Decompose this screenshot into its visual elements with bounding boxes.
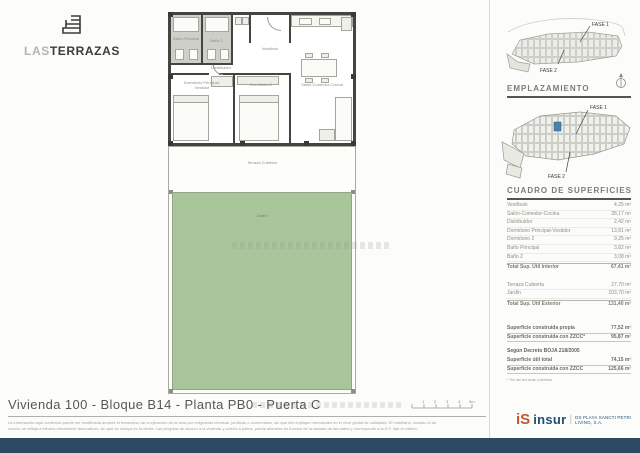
insur-logo-mark: iS [516, 413, 530, 427]
scale-tick-label: 1 [422, 399, 425, 404]
surface-row: Dormitorio Principal-Vestidor13,81 m² [507, 228, 631, 237]
garden-label: Jardín [173, 213, 351, 218]
shower-symbol [173, 17, 199, 32]
surface-value: 103,70 m² [608, 291, 631, 296]
brand-word-light: LAS [24, 44, 50, 58]
surface-row: Baño Principal3,82 m² [507, 245, 631, 254]
washer-symbol [242, 17, 249, 25]
decree-row: Superficie útil total74,15 m² [507, 357, 631, 366]
floor-plan: Baño Principal Baño 2 Vestíbulo Distribu… [168, 12, 356, 394]
built-row: Superficie construida propia77,52 m² [507, 325, 631, 334]
built-surfaces-block: Superficie construida propia77,52 m² Sup… [507, 325, 631, 382]
room-label: Salón-Comedor-Cocina [293, 83, 351, 88]
surface-value: 13,81 m² [611, 229, 631, 234]
surfaces-heading: CUADRO DE SUPERFICIES [507, 186, 632, 195]
surface-label: Jardín [507, 291, 521, 296]
emplazamiento-heading: EMPLAZAMIENTO [507, 84, 631, 93]
surface-value: 95,87 m² [611, 335, 631, 340]
wall [171, 73, 209, 75]
surface-label: Superficie útil total [507, 358, 552, 363]
brand-wordmark: LASTERRAZAS [16, 44, 128, 58]
surface-label: Superficie construida propia [507, 326, 575, 331]
surface-label: Superficie construida con ZZCC [507, 367, 583, 372]
terrace-garden-plot: Terraza Cubierta Jardín [168, 146, 356, 394]
surface-value: 9,25 m² [614, 237, 631, 242]
fase2-label: FASE 2 [540, 68, 557, 74]
surface-value: 27,70 m² [611, 283, 631, 288]
surface-label: Salón-Comedor-Cocina [507, 212, 559, 217]
developer-company-name: DS PLAYA SANCTI PETRI LIVING, S.A. [575, 415, 640, 425]
highlighted-unit [554, 122, 561, 131]
surface-value: 28,17 m² [611, 212, 631, 217]
surface-row: Terraza Cubierta27,70 m² [507, 282, 631, 291]
pillar [351, 12, 356, 17]
plan-sheet: LASTERRAZAS [0, 0, 640, 453]
surface-row: Jardín103,70 m² [507, 290, 631, 299]
info-panel: FASE 1 FASE 2 EMPLAZAMIENTO [490, 0, 640, 438]
toilet-symbol [207, 49, 216, 60]
buildings-mass [512, 32, 622, 64]
room-label: Dormitorio 2 [239, 83, 283, 88]
decree-row: Superficie construida con ZZCC125,66 m² [507, 366, 631, 375]
sofa-symbol [335, 97, 352, 141]
surface-value: 2,42 m² [614, 220, 631, 225]
entrance-door-arc [267, 17, 281, 31]
surface-value: 3,08 m² [614, 255, 631, 260]
site-plan-overview: FASE 1 FASE 2 [504, 12, 628, 78]
wall [219, 73, 289, 75]
dining-table-symbol [301, 59, 337, 77]
surface-value: 4,25 m² [614, 203, 631, 208]
watermark [232, 242, 390, 249]
scale-tick-label: 2 [434, 399, 437, 404]
fase1-label: FASE 1 [590, 105, 607, 111]
surface-label: Distribuidor [507, 220, 532, 225]
room-label: Baño Principal [171, 37, 201, 42]
interior-total-row: Total Sup. Útil Interior67,41 m² [507, 263, 631, 272]
surface-row: Vestíbulo4,25 m² [507, 202, 631, 211]
terrace-label: Terraza Cubierta [169, 161, 355, 166]
fase2-label: FASE 2 [548, 174, 565, 180]
site-plan-location: FASE 1 FASE 2 [498, 98, 636, 184]
insur-logo: iS insur | DS PLAYA SANCTI PETRI LIVING,… [516, 412, 640, 427]
surface-value: 3,82 m² [614, 246, 631, 251]
shower-symbol [205, 17, 229, 32]
disclaimer-line2: cocina, se refleja a efectos meramente d… [8, 426, 488, 432]
wall [233, 73, 235, 143]
pillar [168, 12, 173, 17]
heading-rule [507, 198, 631, 200]
north-compass-icon [614, 72, 628, 90]
terraces-icon [59, 12, 85, 38]
insur-logo-text: insur [533, 412, 566, 427]
wall [289, 73, 291, 143]
surface-label: Dormitorio Principal-Vestidor [507, 229, 570, 234]
surfaces-table: Vestíbulo4,25 m² Salón-Comedor-Cocina28,… [507, 202, 631, 309]
disclaimer-text: La información aquí contenida puede ser … [8, 420, 488, 431]
room-label: Distribuidor [199, 66, 243, 71]
fase1-label: FASE 1 [592, 22, 609, 28]
surface-value: 67,41 m² [611, 265, 631, 270]
plot-post [351, 389, 355, 393]
footer-color-bar [0, 438, 640, 453]
surface-label: Total Sup. Útil Exterior [507, 302, 561, 307]
washbasin-symbol [220, 49, 229, 60]
surface-row: Distribuidor2,42 m² [507, 219, 631, 228]
surfaces-footnote: * Sin las terrazas cubiertas [507, 378, 631, 382]
surface-row: Salón-Comedor-Cocina28,17 m² [507, 211, 631, 220]
decree-heading: Según Decreto BOJA 218/2005 [507, 348, 631, 354]
exterior-total-row: Total Sup. Útil Exterior131,40 m² [507, 300, 631, 309]
bed-pillow-symbol [173, 95, 209, 103]
surface-value: 125,66 m² [608, 367, 631, 372]
brand-word-bold: TERRAZAS [50, 44, 120, 58]
buildings-mass [512, 112, 630, 160]
toilet-symbol [175, 49, 184, 60]
surface-label: Baño 2 [507, 255, 523, 260]
chair-symbol [305, 53, 313, 58]
wall [249, 15, 251, 43]
surface-label: Superficie construida con ZZCC* [507, 335, 585, 340]
logo-separator: | [569, 414, 572, 425]
sink-symbol [319, 18, 331, 25]
pillar [351, 74, 356, 79]
fridge-symbol [341, 17, 352, 31]
room-label: Baño 2 [203, 39, 230, 44]
chair-symbol [321, 53, 329, 58]
apartment-outline: Baño Principal Baño 2 Vestíbulo Distribu… [168, 12, 356, 146]
bed-pillow-symbol [239, 95, 279, 103]
surface-label: Vestíbulo [507, 203, 528, 208]
pillar [168, 74, 173, 79]
surface-row: Dormitorio 29,25 m² [507, 236, 631, 245]
surface-label: Terraza Cubierta [507, 283, 544, 288]
surface-label: Total Sup. Útil Interior [507, 265, 559, 270]
washer-symbol [235, 17, 242, 25]
scale-tick-label: 3 [446, 399, 449, 404]
scale-bar: 1 2 3 4 5m [410, 398, 486, 410]
plot-post [169, 389, 173, 393]
garden-area: Jardín [172, 192, 352, 390]
scale-tick-label: 4 [458, 399, 461, 404]
surface-value: 77,52 m² [611, 326, 631, 331]
surface-label: Baño Principal [507, 246, 539, 251]
scale-tick-label: 5m [469, 399, 475, 404]
surface-label: Dormitorio 2 [507, 237, 534, 242]
hob-symbol [299, 18, 312, 25]
built-row: Superficie construida con ZZCC*95,87 m² [507, 334, 631, 343]
surface-value: 131,40 m² [608, 302, 631, 307]
surface-row: Baño 23,08 m² [507, 254, 631, 263]
room-label: Vestíbulo [253, 47, 287, 52]
sofa-chaise-symbol [319, 129, 335, 141]
surface-value: 74,15 m² [611, 358, 631, 363]
wall [231, 15, 233, 65]
room-label: Dormitorio Principal-Vestidor [177, 81, 227, 90]
disclaimer-line1: La información aquí contenida puede ser … [8, 420, 488, 426]
washbasin-symbol [189, 49, 198, 60]
brand-logo: LASTERRAZAS [16, 12, 128, 58]
